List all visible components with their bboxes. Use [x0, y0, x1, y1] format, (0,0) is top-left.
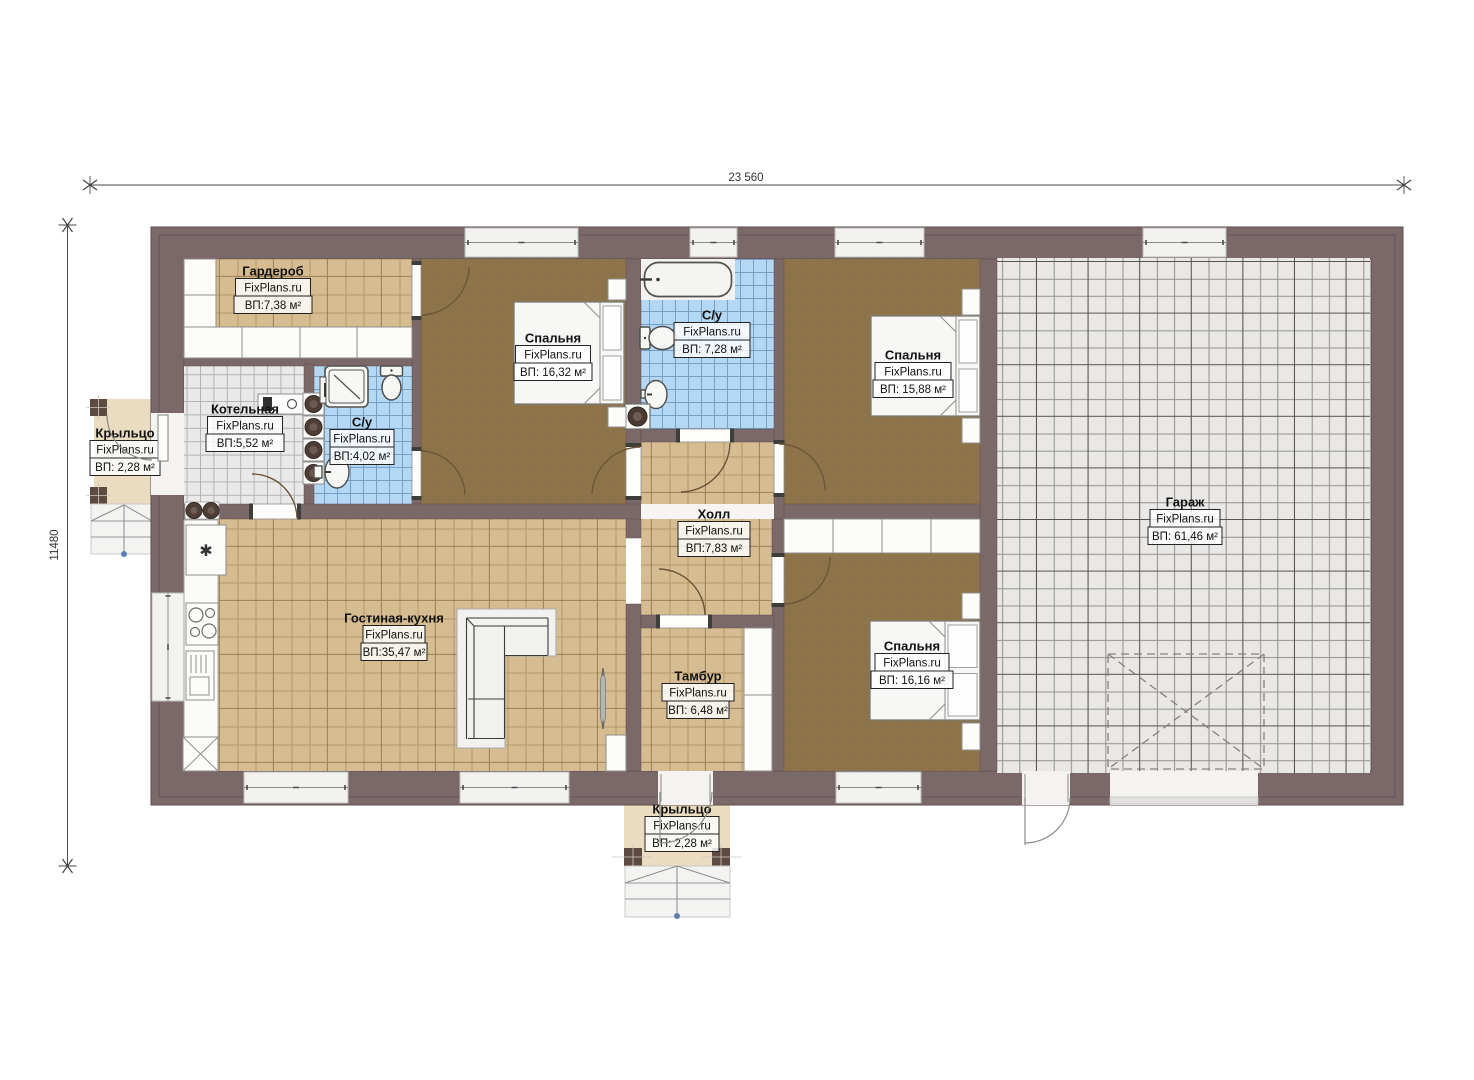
svg-text:Гостиная-кухня: Гостиная-кухня — [344, 611, 444, 626]
svg-text:FixPlans.ru: FixPlans.ru — [524, 350, 582, 362]
svg-text:ВП: 15,88 м²: ВП: 15,88 м² — [880, 384, 946, 396]
svg-text:FixPlans.ru: FixPlans.ru — [333, 434, 391, 446]
svg-text:FixPlans.ru: FixPlans.ru — [683, 327, 741, 339]
svg-text:Спальня: Спальня — [884, 639, 940, 654]
svg-text:ВП:35,47 м²: ВП:35,47 м² — [363, 647, 426, 659]
svg-text:ВП: 6,48 м²: ВП: 6,48 м² — [668, 705, 728, 717]
svg-text:ВП: 2,28 м²: ВП: 2,28 м² — [95, 462, 155, 474]
svg-text:Холл: Холл — [698, 507, 731, 522]
svg-text:Котельная: Котельная — [211, 402, 279, 417]
svg-text:ВП: 7,28 м²: ВП: 7,28 м² — [682, 344, 742, 356]
svg-text:11480: 11480 — [49, 529, 61, 560]
svg-text:FixPlans.ru: FixPlans.ru — [244, 283, 302, 295]
svg-text:ВП:4,02 м²: ВП:4,02 м² — [334, 451, 391, 463]
svg-text:Спальня: Спальня — [885, 348, 941, 363]
svg-text:Гардероб: Гардероб — [242, 264, 303, 279]
svg-text:Тамбур: Тамбур — [674, 669, 721, 684]
svg-text:Спальня: Спальня — [525, 331, 581, 346]
svg-text:FixPlans.ru: FixPlans.ru — [669, 688, 727, 700]
svg-text:FixPlans.ru: FixPlans.ru — [884, 367, 942, 379]
svg-text:Крыльцо: Крыльцо — [95, 426, 154, 441]
svg-text:С/у: С/у — [702, 308, 723, 323]
svg-text:С/у: С/у — [352, 415, 373, 430]
svg-text:ВП: 16,16 м²: ВП: 16,16 м² — [879, 675, 945, 687]
svg-text:FixPlans.ru: FixPlans.ru — [216, 421, 274, 433]
svg-text:23 560: 23 560 — [728, 172, 763, 184]
svg-text:✱: ✱ — [199, 543, 212, 560]
svg-text:FixPlans.ru: FixPlans.ru — [685, 526, 743, 538]
svg-text:ВП: 2,28 м²: ВП: 2,28 м² — [652, 838, 712, 850]
svg-text:FixPlans.ru: FixPlans.ru — [883, 658, 941, 670]
svg-text:ВП: 61,46 м²: ВП: 61,46 м² — [1152, 531, 1218, 543]
svg-text:ВП:7,83 м²: ВП:7,83 м² — [686, 543, 743, 555]
svg-text:FixPlans.ru: FixPlans.ru — [1156, 514, 1214, 526]
svg-text:Крыльцо: Крыльцо — [652, 802, 711, 817]
svg-text:ВП: 16,32 м²: ВП: 16,32 м² — [520, 367, 586, 379]
svg-text:ВП:7,38 м²: ВП:7,38 м² — [245, 300, 302, 312]
svg-text:Гараж: Гараж — [1166, 495, 1206, 510]
svg-text:ВП:5,52 м²: ВП:5,52 м² — [217, 438, 274, 450]
svg-text:FixPlans.ru: FixPlans.ru — [365, 630, 423, 642]
